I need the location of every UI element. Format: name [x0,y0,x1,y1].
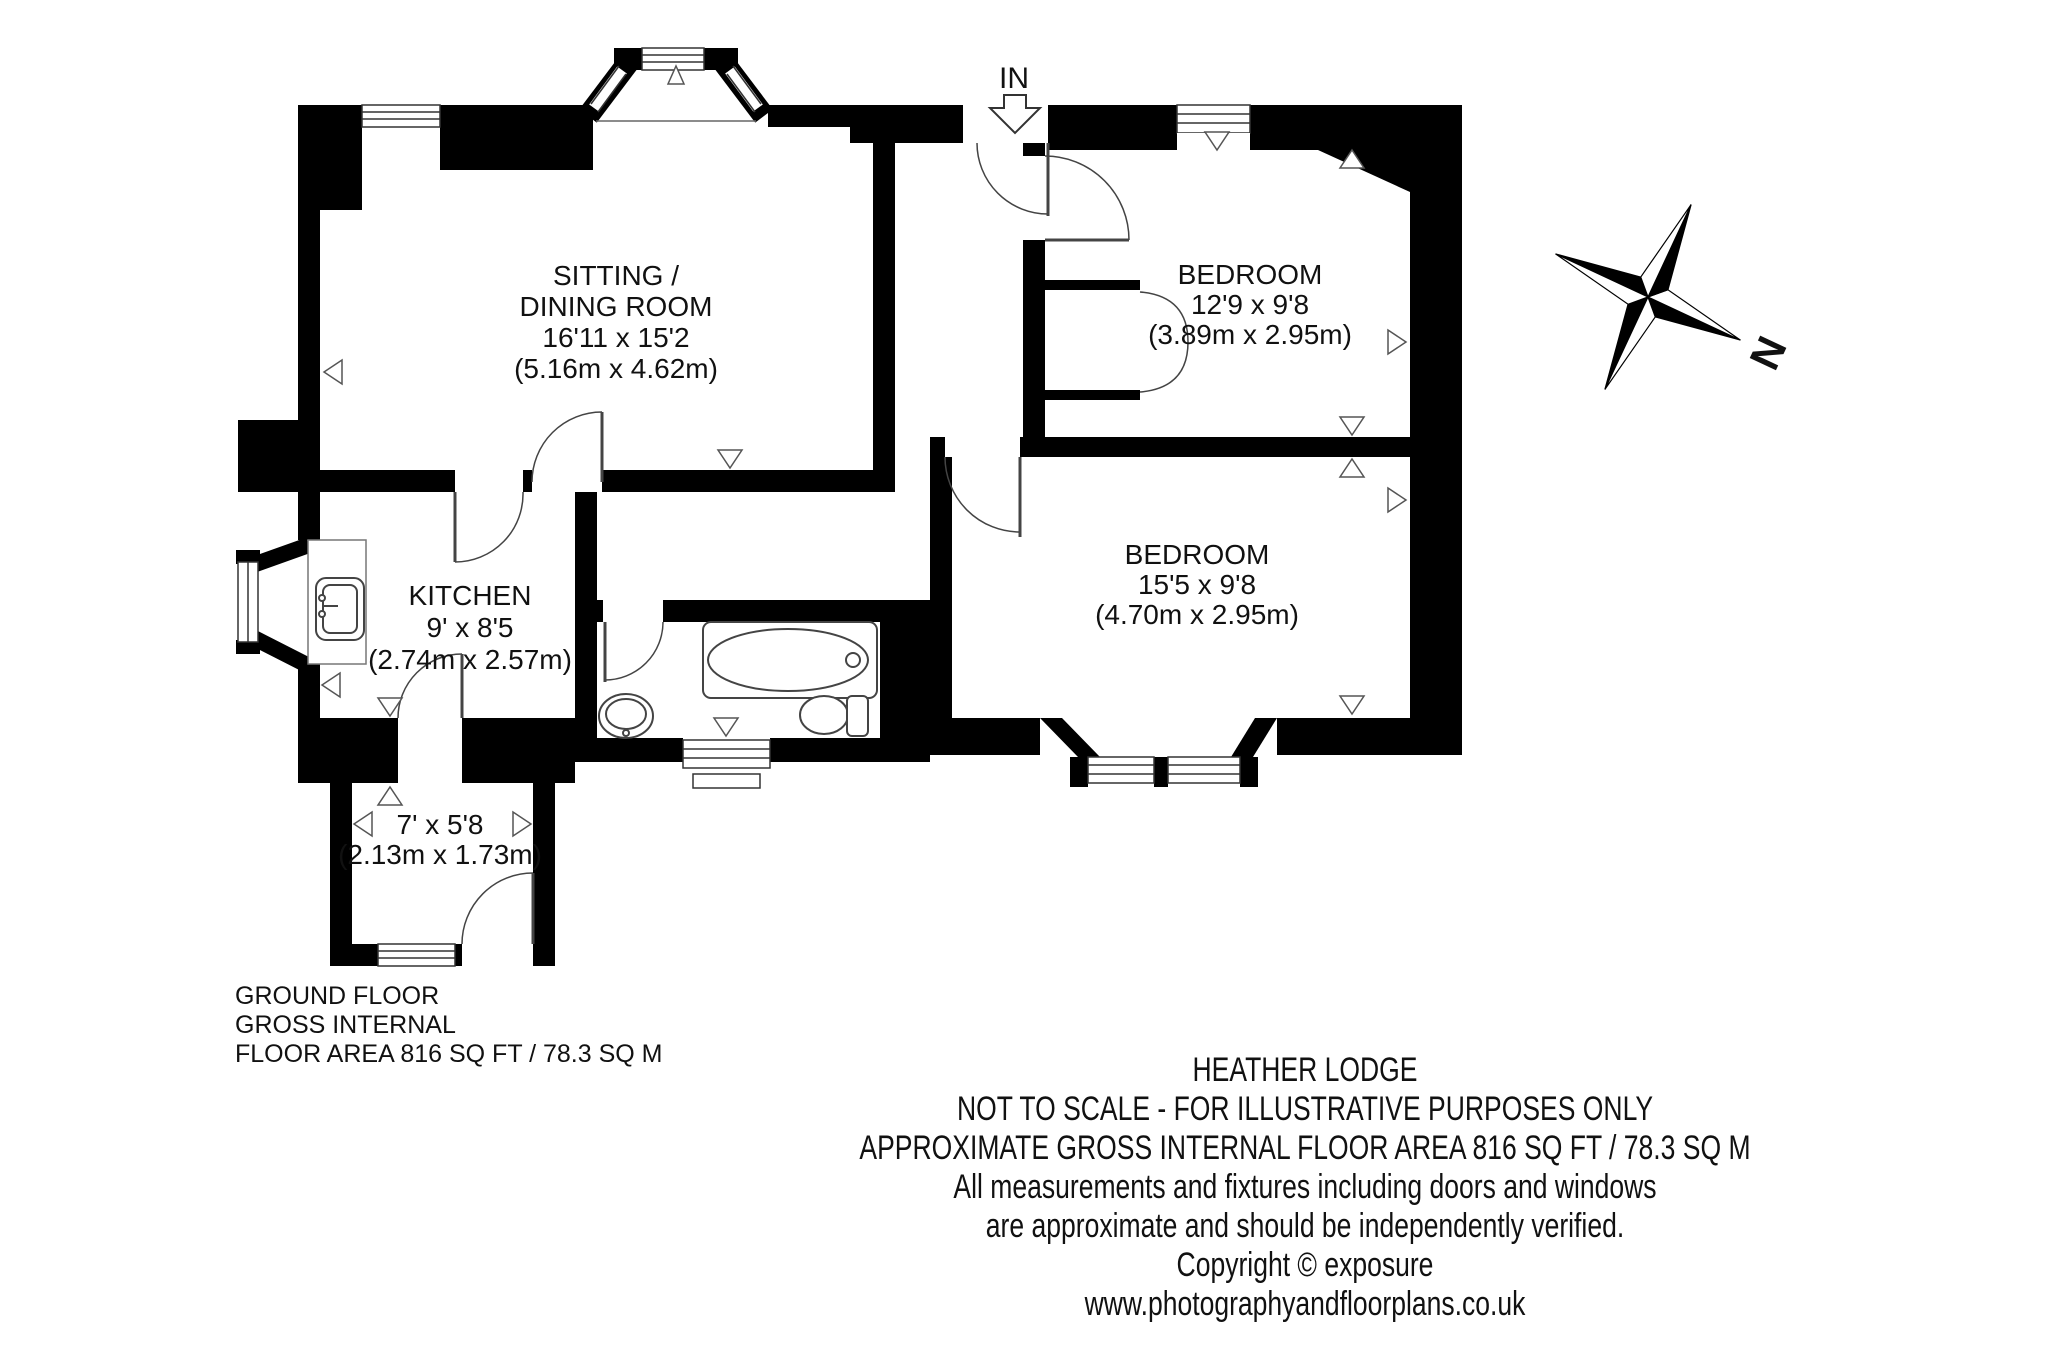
summary-line: GROSS INTERNAL [235,1011,875,1040]
wash-basin [599,694,653,738]
wall [873,127,895,492]
window-sill [693,774,760,788]
in-arrow-icon [990,95,1040,133]
closet-wall [1045,390,1140,400]
bay-mullion [1154,757,1168,787]
marker-triangle [1340,417,1364,435]
wall [238,420,298,492]
marker-triangle [1388,488,1406,512]
window [683,740,770,768]
sitting-room-label: SITTING / DINING ROOM 16'11 x 15'2 (5.16… [514,260,718,384]
wall [930,718,1040,755]
marker-triangle [354,812,372,836]
entrance-in-label: IN [999,62,1029,95]
wall [880,600,930,738]
compass-north-label: N [1740,329,1795,376]
sitting-room-door [532,412,602,482]
bay-wall [1240,757,1258,787]
marker-triangle [714,718,738,736]
marker-triangle [718,450,742,468]
marker-triangle [324,360,342,384]
wall [1410,105,1462,755]
wall [597,600,603,622]
room-dimensions-m: (2.74m x 2.57m) [368,644,572,675]
marker-triangle [322,673,340,697]
window [1088,757,1154,783]
wall [462,718,575,783]
wall [533,783,555,966]
bedroom2-label: BEDROOM 15'5 x 9'8 (4.70m x 2.95m) [1095,539,1299,630]
wall [930,437,945,457]
window [642,48,704,70]
window [1168,757,1240,783]
wall [330,944,378,966]
wall [533,944,555,966]
wall [1020,437,1410,457]
bedroom2-door [945,457,1020,537]
wall [440,105,593,170]
marker-triangle [1388,330,1406,354]
wall [320,470,455,492]
disclaimer-block: HEATHER LODGE NOT TO SCALE - FOR ILLUSTR… [705,1051,1905,1324]
kitchen-label: KITCHEN 9' x 8'5 (2.74m x 2.57m) [368,580,572,675]
windows [238,48,1250,966]
wall [575,738,683,762]
marker-triangle [513,812,531,836]
wall [768,105,963,127]
wall [523,470,532,492]
room-dimensions-ft: 7' x 5'8 [397,809,484,840]
room-dimensions-m: (4.70m x 2.95m) [1095,599,1299,630]
room-name: SITTING / [553,260,679,291]
marker-triangle [1340,459,1364,477]
wall [1277,718,1460,755]
property-title: HEATHER LODGE [837,1051,1773,1090]
wall-angled-corner [1318,150,1410,192]
wall [930,457,952,718]
disclaimer-line: are approximate and should be independen… [837,1207,1773,1246]
room-dimensions-ft: 16'11 x 15'2 [542,322,689,353]
room-dimensions-m: (2.13m x 1.73m) [338,839,542,870]
wall [770,738,930,762]
wall [575,492,597,738]
marker-triangle [378,787,402,805]
bedroom1-label: BEDROOM 12'9 x 9'8 (3.89m x 2.95m) [1148,259,1352,350]
bathtub [703,622,877,698]
wall [1250,105,1410,150]
kitchen-door [455,492,523,562]
wall [455,944,462,966]
toilet [800,696,868,736]
room-dimensions-m: (5.16m x 4.62m) [514,353,718,384]
wall [1023,143,1045,156]
wall [1023,240,1045,437]
room-name: BEDROOM [1178,259,1323,290]
window [378,944,455,966]
disclaimer-line: NOT TO SCALE - FOR ILLUSTRATIVE PURPOSES… [837,1090,1773,1129]
bay-wall [1070,757,1088,787]
bay-wall [1040,718,1100,757]
bedroom1-door [1045,156,1129,240]
room-dimensions-ft: 15'5 x 9'8 [1138,569,1256,600]
wall [1048,105,1177,150]
wall [602,470,873,492]
room-dimensions-m: (3.89m x 2.95m) [1148,319,1352,350]
wall [663,600,880,622]
room-name: BEDROOM [1125,539,1270,570]
bay-wall [1231,718,1277,757]
wall [850,127,963,143]
room-dimensions-ft: 9' x 8'5 [427,612,514,643]
kitchen-sink [316,578,364,640]
website-url: www.photographyandfloorplans.co.uk [837,1285,1773,1324]
marker-triangle [1340,696,1364,714]
disclaimer-line: All measurements and fixtures including … [837,1168,1773,1207]
floorplan-page: { "plan": { "entrance_label": "IN", "com… [0,0,2048,1365]
wall [330,783,352,966]
room-name: KITCHEN [409,580,532,611]
room-name: DINING ROOM [520,291,713,322]
porch-exterior-door [462,873,533,944]
room-dimensions-ft: 12'9 x 9'8 [1191,289,1309,320]
window [1177,105,1250,133]
window [362,105,440,127]
bathroom-door [605,622,663,682]
compass-icon: N [1512,161,1832,455]
copyright-line: Copyright © exposure [837,1246,1773,1285]
wall [298,105,320,540]
summary-line: GROUND FLOOR [235,982,875,1011]
wall [298,718,398,783]
closet-wall [1045,280,1140,290]
disclaimer-line: APPROXIMATE GROSS INTERNAL FLOOR AREA 81… [837,1129,1773,1168]
